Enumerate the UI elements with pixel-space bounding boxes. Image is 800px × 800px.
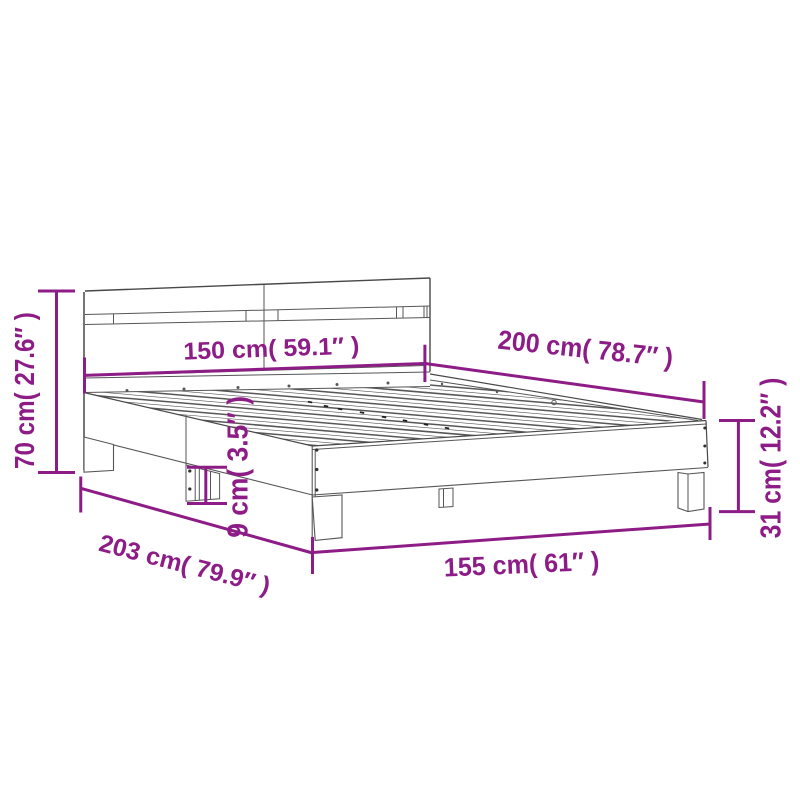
svg-text:31 cm( 12.2″ ): 31 cm( 12.2″ ) — [755, 378, 787, 539]
svg-text:9 cm( 3.5″ ): 9 cm( 3.5″ ) — [221, 396, 253, 538]
svg-text:70 cm( 27.6″ ): 70 cm( 27.6″ ) — [9, 312, 41, 469]
